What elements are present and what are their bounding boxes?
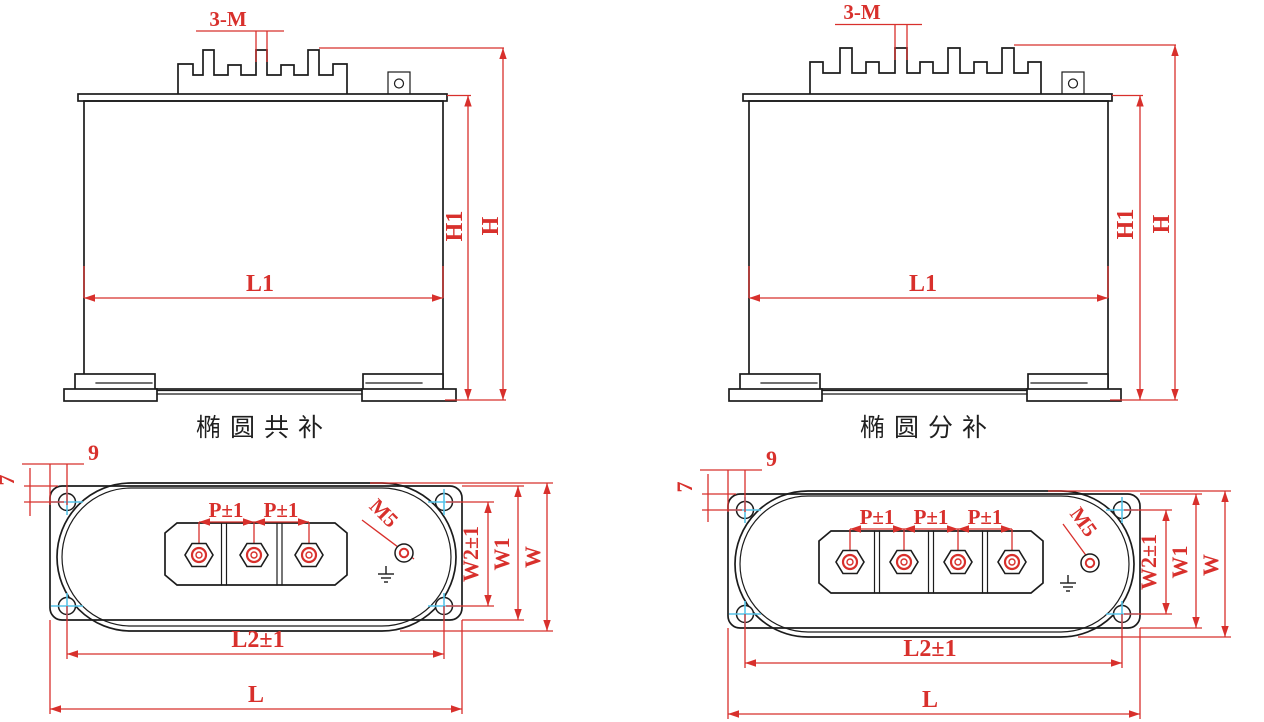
- dim-w1-label: W1: [1167, 546, 1192, 579]
- dim-l2-label: L2±1: [903, 636, 956, 662]
- top-view-split: P±1 P±1 P±1 M5 9 7 W2±1 W1 W: [672, 446, 1231, 719]
- dim-h1-label: H1: [1113, 209, 1139, 240]
- terminal-nut-icon: [890, 551, 918, 574]
- terminal-nut-icon: [944, 551, 972, 574]
- dim-9-label: 9: [766, 446, 777, 471]
- top-view-common: P±1 P±1 M5 9 7 W2±1 W1 W L2±: [0, 440, 553, 714]
- engineering-drawing: 3-M L1 H1 H 椭圆共补 3-M: [0, 0, 1264, 722]
- dim-7-label: 7: [0, 475, 19, 486]
- capacitor-body: [84, 101, 443, 389]
- dim-p-label: P±1: [914, 505, 949, 529]
- capacitor-lid: [743, 94, 1112, 101]
- terminal-nut-icon: [998, 551, 1026, 574]
- dim-7-label: 7: [672, 482, 697, 493]
- drawing-svg: 3-M L1 H1 H 椭圆共补 3-M: [0, 0, 1264, 722]
- dim-w2-label: W2±1: [458, 526, 483, 582]
- terminal-nut-icon: [836, 551, 864, 574]
- dim-l2-label: L2±1: [231, 627, 284, 653]
- dim-l1-label: L1: [909, 271, 937, 297]
- dim-p-label: P±1: [860, 505, 895, 529]
- dim-studs-label: 3-M: [843, 0, 880, 24]
- terminal-nut-icon: [185, 544, 213, 567]
- capacitor-body: [749, 101, 1108, 389]
- capacitor-lid: [78, 94, 447, 101]
- dim-w1-label: W1: [489, 538, 514, 571]
- dim-h-label: H: [1149, 214, 1175, 233]
- foot-base-left: [729, 389, 822, 401]
- ground-terminal: [1081, 554, 1099, 572]
- foot-base-left: [64, 389, 157, 401]
- terminal-nut-icon: [240, 544, 268, 567]
- dim-studs-label: 3-M: [209, 7, 246, 31]
- dim-w-label: W: [520, 546, 545, 568]
- front-view-split: 3-M L1 H1 H 椭圆分补: [729, 0, 1178, 442]
- dim-h-label: H: [478, 216, 504, 235]
- terminal-nut-icon: [295, 544, 323, 567]
- caption-common: 椭圆共补: [196, 414, 332, 442]
- dim-p-label: P±1: [209, 498, 244, 522]
- lug-hole: [395, 79, 404, 88]
- foot-base-right: [362, 389, 456, 401]
- dim-w-label: W: [1198, 554, 1223, 576]
- dim-p-label: P±1: [968, 505, 1003, 529]
- front-view-common: 3-M L1 H1 H 椭圆共补: [64, 7, 506, 442]
- dim-9-label: 9: [88, 440, 99, 465]
- dim-h1-label: H1: [442, 211, 468, 242]
- foot-base-right: [1027, 389, 1121, 401]
- dim-l1-label: L1: [246, 271, 274, 297]
- terminal-block: [810, 48, 1041, 95]
- dim-p-label: P±1: [264, 498, 299, 522]
- terminal-block: [178, 50, 347, 95]
- dim-w2-label: W2±1: [1136, 534, 1161, 590]
- caption-split: 椭圆分补: [860, 414, 996, 442]
- dim-l-label: L: [248, 682, 264, 708]
- lug-hole: [1069, 79, 1078, 88]
- dim-l-label: L: [922, 687, 938, 713]
- ground-terminal: [395, 544, 413, 562]
